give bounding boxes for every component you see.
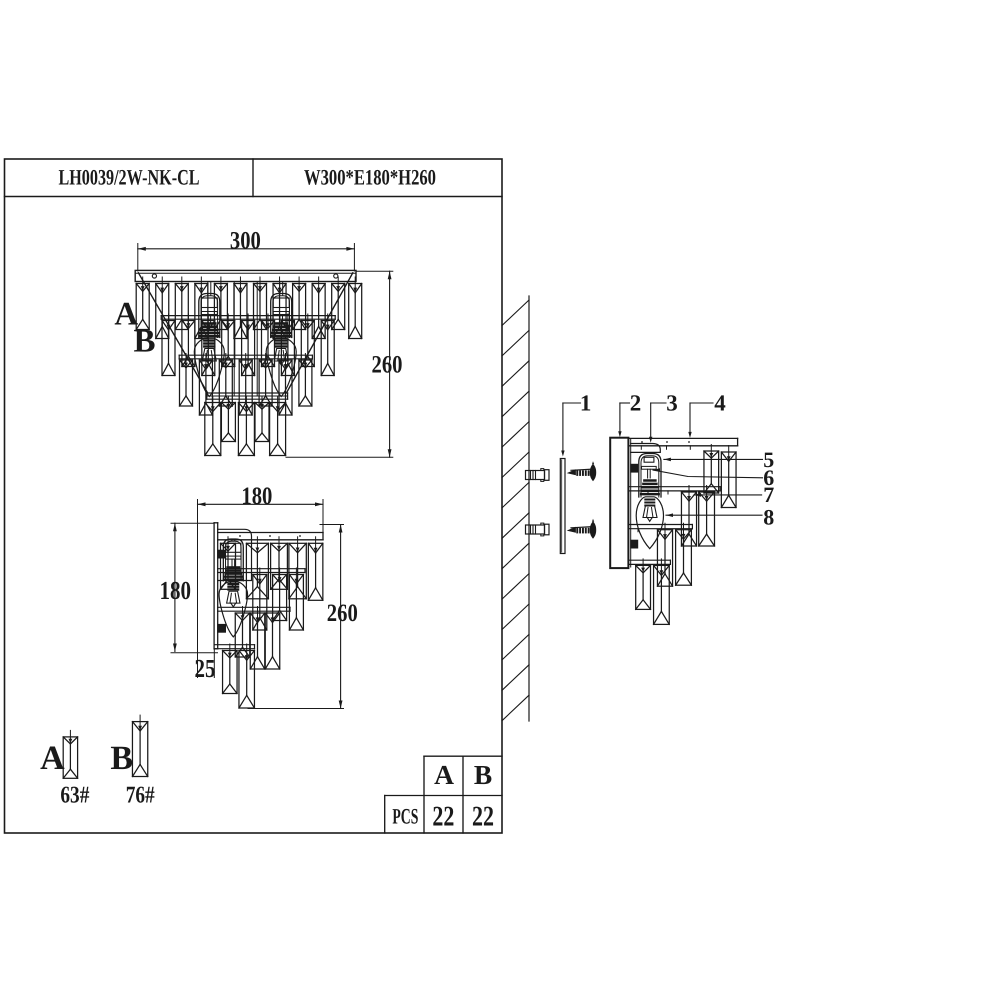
svg-text:A: A [434, 759, 454, 790]
svg-text:LH0039/2W-NK-CL: LH0039/2W-NK-CL [59, 165, 200, 190]
svg-text:B: B [133, 324, 155, 360]
svg-text:7: 7 [763, 482, 774, 507]
svg-text:PCS: PCS [392, 804, 418, 829]
svg-text:22: 22 [472, 802, 494, 833]
svg-text:2: 2 [630, 391, 642, 416]
svg-text:180: 180 [241, 483, 272, 510]
svg-text:22: 22 [432, 802, 454, 833]
svg-text:25: 25 [195, 654, 216, 683]
svg-text:260: 260 [372, 352, 403, 379]
svg-text:W300*E180*H260: W300*E180*H260 [304, 165, 436, 190]
svg-text:1: 1 [580, 391, 592, 416]
svg-text:300: 300 [230, 227, 261, 254]
svg-text:260: 260 [327, 600, 358, 627]
svg-text:A: A [40, 740, 65, 777]
svg-text:8: 8 [763, 505, 774, 530]
svg-text:76#: 76# [126, 783, 155, 809]
svg-text:B: B [474, 759, 492, 790]
svg-text:4: 4 [714, 391, 726, 416]
svg-text:B: B [110, 740, 133, 777]
svg-text:3: 3 [666, 391, 678, 416]
svg-text:180: 180 [160, 576, 192, 605]
svg-text:63#: 63# [60, 783, 89, 809]
